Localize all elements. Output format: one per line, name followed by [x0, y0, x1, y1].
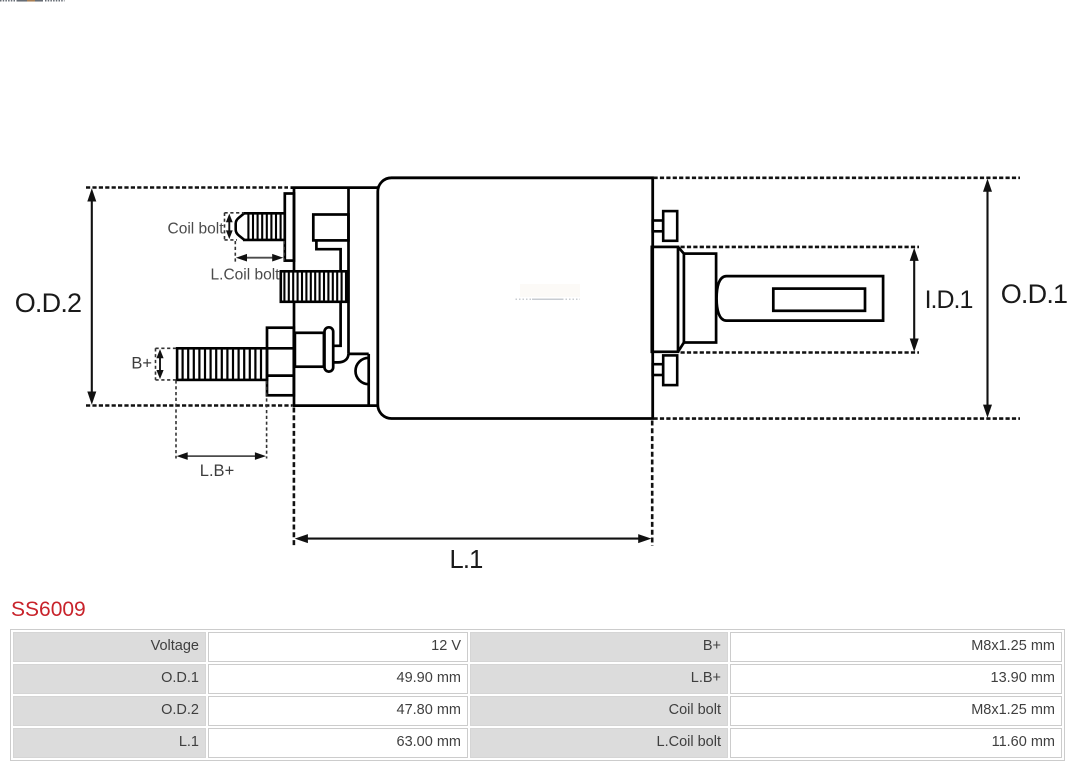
svg-text:L.1: L.1 — [449, 546, 482, 574]
svg-text:O.D.1: O.D.1 — [1001, 279, 1068, 309]
svg-text:B+: B+ — [131, 354, 152, 372]
svg-text:O.D.2: O.D.2 — [15, 288, 82, 318]
svg-text:L.B+: L.B+ — [200, 462, 234, 480]
svg-text:Coil bolt: Coil bolt — [168, 220, 225, 237]
svg-text:L.Coil bolt: L.Coil bolt — [211, 267, 281, 284]
svg-text:I.D.1: I.D.1 — [925, 286, 973, 314]
